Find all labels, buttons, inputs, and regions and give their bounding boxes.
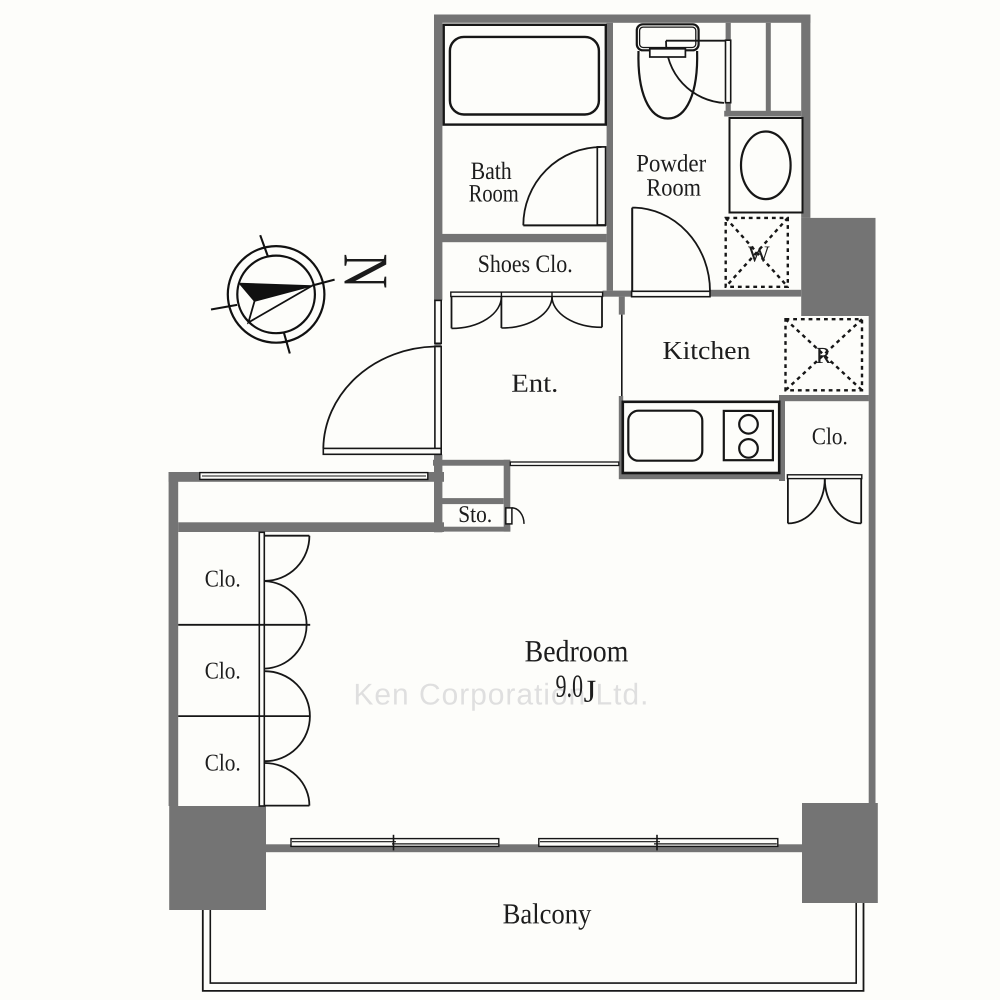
svg-text:N: N bbox=[330, 253, 401, 288]
